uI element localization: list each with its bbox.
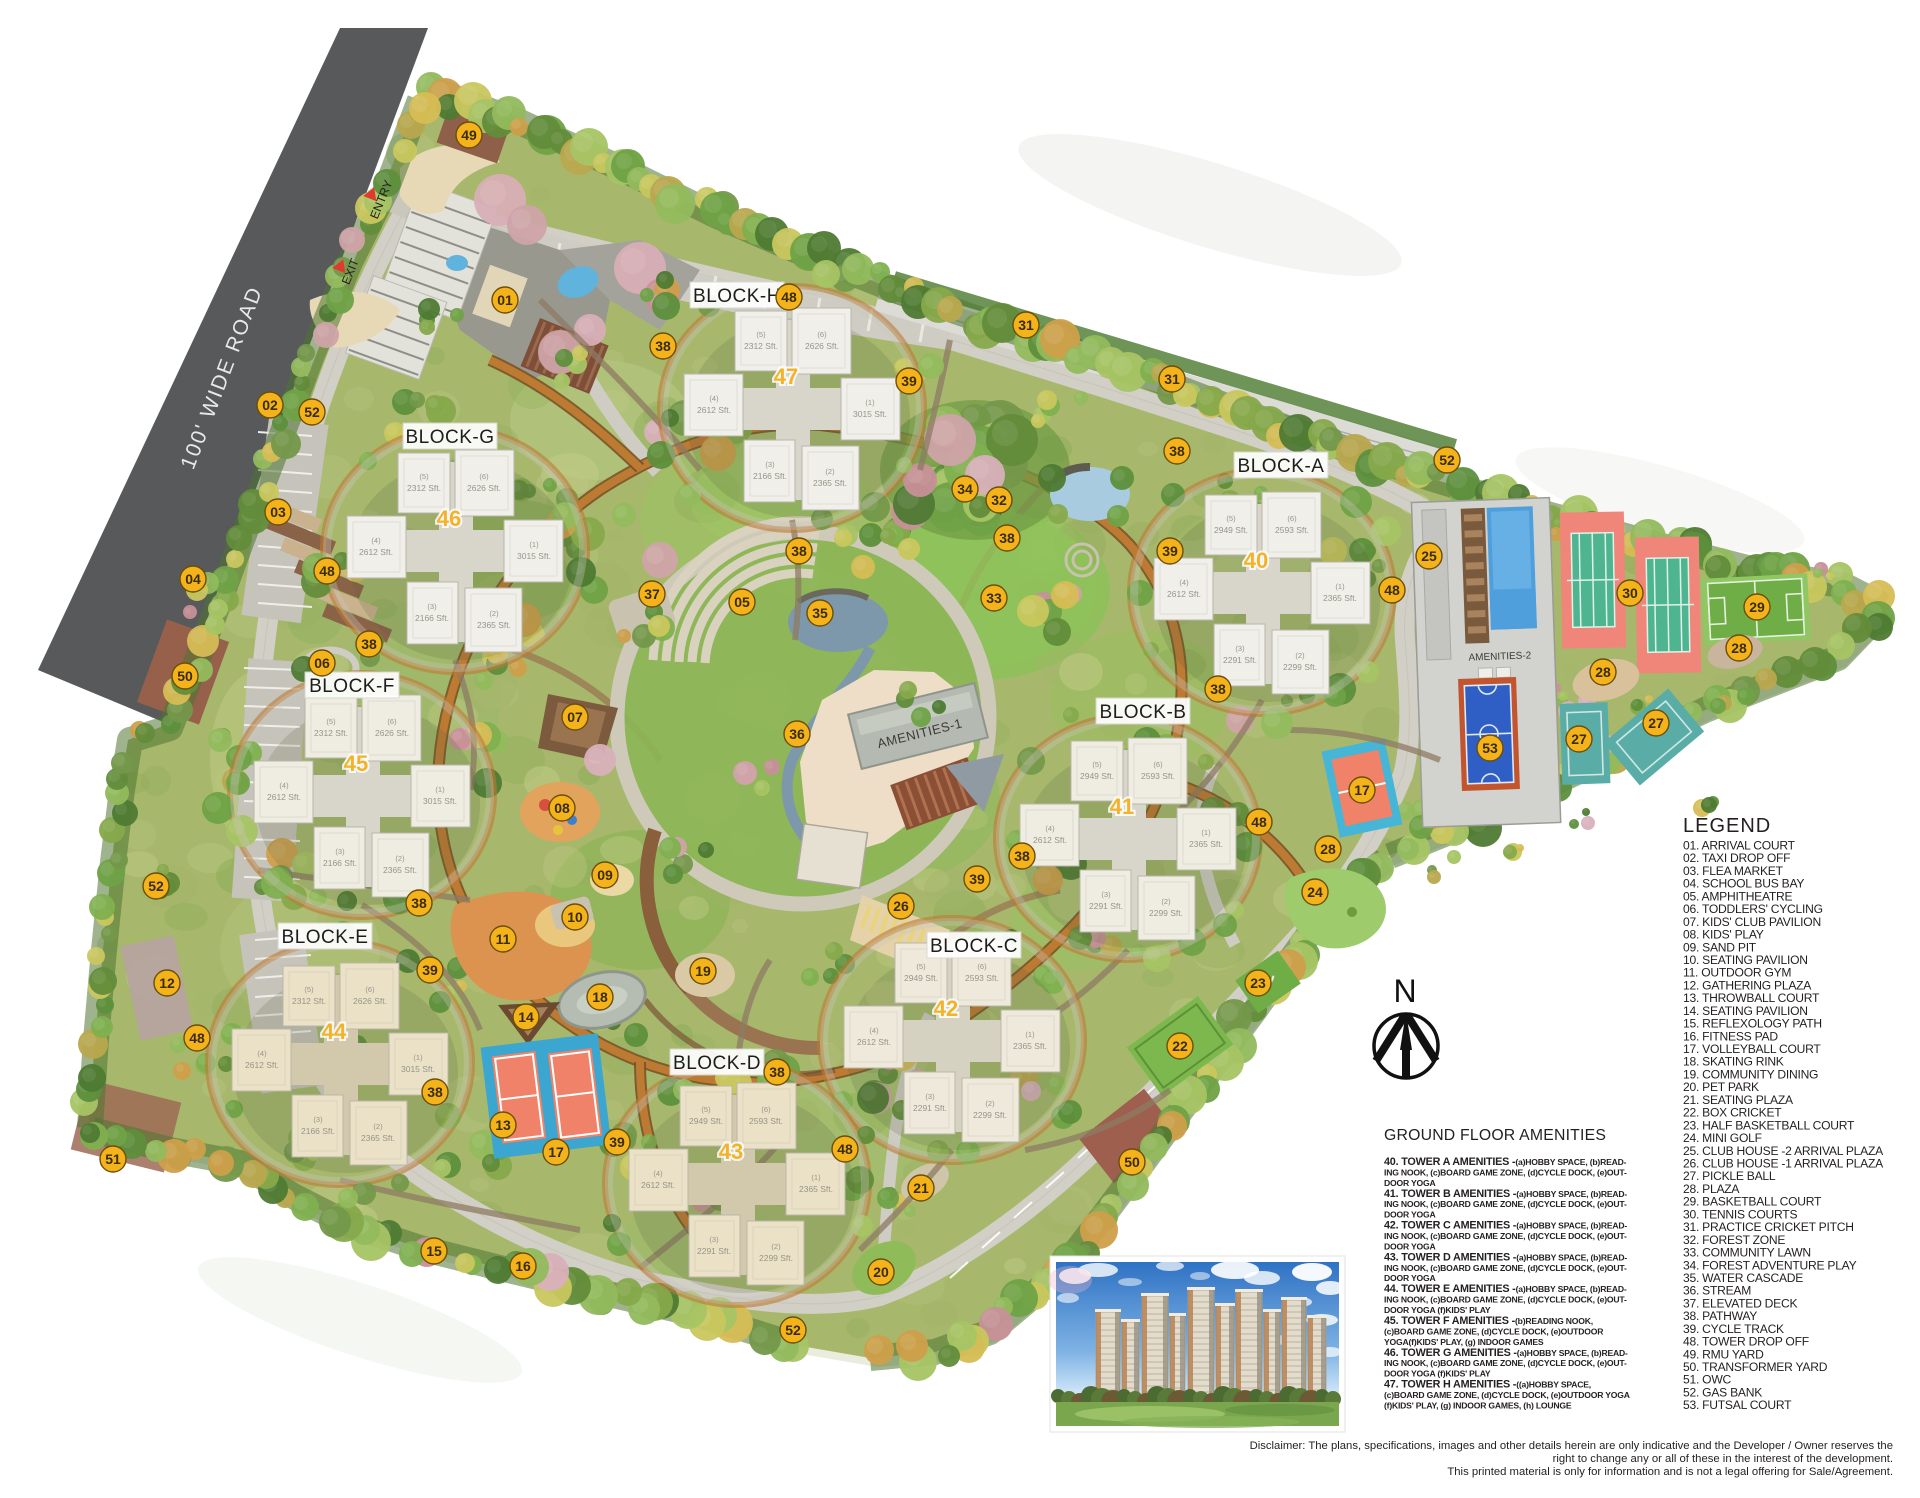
- svg-text:ING NOOK, (c)BOARD GAME ZONE,: ING NOOK, (c)BOARD GAME ZONE, (d)CYCLE D…: [1384, 1295, 1627, 1305]
- svg-text:38: 38: [791, 543, 807, 559]
- svg-text:ING NOOK, (c)BOARD GAME ZONE,: ING NOOK, (c)BOARD GAME ZONE, (d)CYCLE D…: [1384, 1231, 1627, 1241]
- svg-text:47. TOWER H AMENITIES -((a)HOB: 47. TOWER H AMENITIES -((a)HOBBY SPACE,: [1384, 1379, 1591, 1391]
- svg-text:19: 19: [695, 963, 711, 979]
- svg-text:26: 26: [893, 898, 909, 914]
- svg-text:38: 38: [427, 1084, 443, 1100]
- svg-text:42: 42: [934, 996, 958, 1021]
- svg-text:(5): (5): [326, 717, 336, 726]
- svg-text:(3): (3): [765, 460, 775, 469]
- svg-text:2312 Sft.: 2312 Sft.: [744, 341, 778, 351]
- svg-text:(4): (4): [257, 1049, 267, 1058]
- svg-text:46. TOWER G AMENITIES -(a)HOBB: 46. TOWER G AMENITIES -(a)HOBBY SPACE, (…: [1384, 1347, 1628, 1359]
- svg-text:ING NOOK, (c)BOARD GAME ZONE,: ING NOOK, (c)BOARD GAME ZONE, (d)CYCLE D…: [1384, 1358, 1627, 1368]
- svg-text:38: 38: [1014, 848, 1030, 864]
- svg-text:03: 03: [270, 504, 286, 520]
- svg-text:50: 50: [177, 668, 193, 684]
- svg-text:(6): (6): [387, 717, 397, 726]
- svg-text:3015 Sft.: 3015 Sft.: [401, 1064, 435, 1074]
- svg-text:10: 10: [567, 909, 583, 925]
- svg-text:38: 38: [769, 1064, 785, 1080]
- svg-text:01: 01: [497, 292, 513, 308]
- svg-text:(1): (1): [865, 398, 875, 407]
- svg-text:AMENITIES-2: AMENITIES-2: [1468, 650, 1532, 663]
- svg-text:(6): (6): [977, 962, 987, 971]
- svg-text:35: 35: [812, 605, 828, 621]
- svg-text:(3): (3): [1235, 644, 1245, 653]
- svg-text:(3): (3): [925, 1092, 935, 1101]
- svg-text:2291 Sft.: 2291 Sft.: [1223, 655, 1257, 665]
- svg-text:17: 17: [548, 1144, 564, 1160]
- svg-text:2166 Sft.: 2166 Sft.: [415, 613, 449, 623]
- svg-text:38: 38: [999, 530, 1015, 546]
- svg-text:LEGEND: LEGEND: [1683, 815, 1771, 837]
- svg-text:BLOCK-D: BLOCK-D: [673, 1053, 761, 1074]
- svg-text:2299 Sft.: 2299 Sft.: [973, 1110, 1007, 1120]
- svg-text:16: 16: [515, 1258, 531, 1274]
- svg-text:2166 Sft.: 2166 Sft.: [301, 1126, 335, 1136]
- svg-text:(2): (2): [825, 467, 835, 476]
- svg-text:2612 Sft.: 2612 Sft.: [1033, 835, 1067, 845]
- svg-text:39: 39: [1162, 543, 1178, 559]
- svg-text:06: 06: [314, 655, 330, 671]
- svg-text:2312 Sft.: 2312 Sft.: [314, 728, 348, 738]
- svg-text:(2): (2): [395, 854, 405, 863]
- svg-text:52: 52: [785, 1322, 801, 1338]
- svg-text:(2): (2): [771, 1242, 781, 1251]
- svg-text:48: 48: [1251, 814, 1267, 830]
- svg-text:2626 Sft.: 2626 Sft.: [353, 996, 387, 1006]
- svg-text:2312 Sft.: 2312 Sft.: [292, 996, 326, 1006]
- svg-text:2291 Sft.: 2291 Sft.: [913, 1103, 947, 1113]
- svg-text:34: 34: [957, 481, 973, 497]
- svg-text:2365 Sft.: 2365 Sft.: [477, 620, 511, 630]
- svg-text:(1): (1): [1025, 1030, 1035, 1039]
- svg-text:2291 Sft.: 2291 Sft.: [697, 1246, 731, 1256]
- svg-text:41: 41: [1110, 794, 1134, 819]
- svg-text:04: 04: [185, 571, 201, 587]
- svg-text:29: 29: [1749, 599, 1765, 615]
- svg-text:(f)KIDS' PLAY, (g) INDOOR GAME: (f)KIDS' PLAY, (g) INDOOR GAMES, (h) LOU…: [1384, 1400, 1572, 1410]
- svg-text:2365 Sft.: 2365 Sft.: [1013, 1041, 1047, 1051]
- svg-text:14: 14: [518, 1009, 534, 1025]
- svg-text:48: 48: [1384, 582, 1400, 598]
- svg-text:(3): (3): [1101, 890, 1111, 899]
- svg-text:2612 Sft.: 2612 Sft.: [1167, 589, 1201, 599]
- svg-text:(3): (3): [313, 1115, 323, 1124]
- svg-text:2949 Sft.: 2949 Sft.: [1214, 525, 1248, 535]
- svg-text:13: 13: [495, 1117, 511, 1133]
- svg-text:09: 09: [597, 867, 613, 883]
- svg-text:3015 Sft.: 3015 Sft.: [853, 409, 887, 419]
- svg-text:38: 38: [411, 895, 427, 911]
- svg-text:15: 15: [426, 1243, 442, 1259]
- svg-text:21: 21: [913, 1180, 929, 1196]
- svg-text:(4): (4): [653, 1169, 663, 1178]
- svg-text:42. TOWER C AMENITIES -(a)HOBB: 42. TOWER C AMENITIES -(a)HOBBY SPACE, (…: [1384, 1220, 1627, 1232]
- svg-text:ING NOOK, (c)BOARD GAME ZONE,: ING NOOK, (c)BOARD GAME ZONE, (d)CYCLE D…: [1384, 1263, 1627, 1273]
- svg-text:(1): (1): [1201, 828, 1211, 837]
- svg-text:2949 Sft.: 2949 Sft.: [689, 1116, 723, 1126]
- svg-text:2166 Sft.: 2166 Sft.: [323, 858, 357, 868]
- svg-text:2612 Sft.: 2612 Sft.: [641, 1180, 675, 1190]
- svg-text:2365 Sft.: 2365 Sft.: [361, 1133, 395, 1143]
- svg-text:37: 37: [644, 586, 660, 602]
- svg-text:DOOR YOGA (f)KIDS' PLAY: DOOR YOGA (f)KIDS' PLAY: [1384, 1369, 1491, 1379]
- svg-text:2593 Sft.: 2593 Sft.: [965, 973, 999, 983]
- svg-text:2612 Sft.: 2612 Sft.: [267, 792, 301, 802]
- svg-text:43: 43: [719, 1139, 743, 1164]
- svg-text:(2): (2): [373, 1122, 383, 1131]
- svg-text:38: 38: [1169, 443, 1185, 459]
- svg-text:BLOCK-G: BLOCK-G: [405, 427, 494, 448]
- svg-text:(5): (5): [304, 985, 314, 994]
- svg-text:(4): (4): [709, 394, 719, 403]
- svg-text:2612 Sft.: 2612 Sft.: [245, 1060, 279, 1070]
- svg-text:(c)BOARD GAME ZONE, (d)CYCLE D: (c)BOARD GAME ZONE, (d)CYCLE DOCK, (e)OU…: [1384, 1326, 1604, 1336]
- svg-text:(1): (1): [413, 1053, 423, 1062]
- svg-text:2626 Sft.: 2626 Sft.: [467, 483, 501, 493]
- svg-text:39: 39: [422, 962, 438, 978]
- svg-text:08: 08: [554, 800, 570, 816]
- svg-text:02: 02: [262, 397, 278, 413]
- svg-text:GROUND FLOOR AMENITIES: GROUND FLOOR AMENITIES: [1384, 1127, 1606, 1144]
- svg-text:39: 39: [609, 1134, 625, 1150]
- svg-text:BLOCK-F: BLOCK-F: [309, 676, 395, 697]
- svg-text:22: 22: [1172, 1038, 1188, 1054]
- svg-text:45: 45: [344, 751, 368, 776]
- svg-text:51: 51: [105, 1151, 121, 1167]
- svg-text:(5): (5): [1092, 760, 1102, 769]
- svg-text:50: 50: [1124, 1154, 1140, 1170]
- svg-text:2612 Sft.: 2612 Sft.: [697, 405, 731, 415]
- svg-text:28: 28: [1320, 841, 1336, 857]
- svg-text:BLOCK-C: BLOCK-C: [930, 936, 1018, 957]
- svg-text:30: 30: [1622, 585, 1638, 601]
- svg-text:(6): (6): [761, 1105, 771, 1114]
- svg-text:Disclaimer: The plans, specifi: Disclaimer: The plans, specifications, i…: [1250, 1440, 1893, 1452]
- svg-text:2365 Sft.: 2365 Sft.: [1323, 593, 1357, 603]
- svg-text:48: 48: [781, 289, 797, 305]
- svg-text:44: 44: [322, 1019, 347, 1044]
- svg-text:36: 36: [789, 726, 805, 742]
- svg-text:(5): (5): [756, 330, 766, 339]
- svg-text:(2): (2): [489, 609, 499, 618]
- svg-text:52: 52: [148, 878, 164, 894]
- svg-text:N: N: [1393, 973, 1416, 1009]
- svg-text:32: 32: [991, 492, 1007, 508]
- svg-text:2626 Sft.: 2626 Sft.: [375, 728, 409, 738]
- svg-text:(5): (5): [419, 472, 429, 481]
- svg-text:48: 48: [189, 1030, 205, 1046]
- svg-text:(6): (6): [365, 985, 375, 994]
- svg-text:07: 07: [567, 709, 583, 725]
- svg-text:48: 48: [319, 563, 335, 579]
- svg-text:2949 Sft.: 2949 Sft.: [1080, 771, 1114, 781]
- svg-text:(2): (2): [1161, 897, 1171, 906]
- svg-text:BLOCK-H: BLOCK-H: [693, 286, 781, 307]
- svg-text:3015 Sft.: 3015 Sft.: [423, 796, 457, 806]
- svg-text:This printed material is only: This printed material is only for inform…: [1447, 1466, 1893, 1478]
- svg-text:(6): (6): [1287, 514, 1297, 523]
- svg-text:2612 Sft.: 2612 Sft.: [857, 1037, 891, 1047]
- svg-text:right to change any or all of: right to change any or all of these in t…: [1553, 1453, 1893, 1465]
- svg-text:05: 05: [734, 594, 750, 610]
- svg-text:38: 38: [655, 338, 671, 354]
- svg-text:(2): (2): [1295, 651, 1305, 660]
- svg-text:(4): (4): [1045, 824, 1055, 833]
- svg-text:2593 Sft.: 2593 Sft.: [749, 1116, 783, 1126]
- svg-text:(4): (4): [869, 1026, 879, 1035]
- svg-text:(6): (6): [1153, 760, 1163, 769]
- svg-text:(1): (1): [811, 1173, 821, 1182]
- svg-text:(5): (5): [701, 1105, 711, 1114]
- svg-text:53: 53: [1482, 740, 1498, 756]
- svg-text:23: 23: [1250, 975, 1266, 991]
- svg-text:27: 27: [1571, 731, 1587, 747]
- svg-text:11: 11: [496, 931, 511, 947]
- svg-text:2626 Sft.: 2626 Sft.: [805, 341, 839, 351]
- svg-text:2365 Sft.: 2365 Sft.: [813, 478, 847, 488]
- svg-text:ING NOOK, (c)BOARD GAME ZONE,: ING NOOK, (c)BOARD GAME ZONE, (d)CYCLE D…: [1384, 1167, 1627, 1177]
- svg-text:48: 48: [837, 1141, 853, 1157]
- svg-text:27: 27: [1648, 715, 1664, 731]
- svg-text:44. TOWER E AMENITIES -(a)HOB: 44. TOWER E AMENITIES -(a)HOBBY SPACE, (…: [1384, 1283, 1627, 1295]
- svg-text:2949 Sft.: 2949 Sft.: [904, 973, 938, 983]
- svg-text:49: 49: [461, 127, 477, 143]
- svg-text:2365 Sft.: 2365 Sft.: [383, 865, 417, 875]
- svg-text:(2): (2): [985, 1099, 995, 1108]
- svg-text:40. TOWER A AMENITIES -(a)HOB: 40. TOWER A AMENITIES -(a)HOBBY SPACE, (…: [1384, 1156, 1627, 1168]
- svg-text:(5): (5): [916, 962, 926, 971]
- svg-text:43. TOWER D AMENITIES -(a)HOBB: 43. TOWER D AMENITIES -(a)HOBBY SPACE, (…: [1384, 1251, 1627, 1263]
- svg-text:31: 31: [1164, 371, 1180, 387]
- svg-text:38: 38: [361, 636, 377, 652]
- svg-text:(1): (1): [1335, 582, 1345, 591]
- svg-text:2166 Sft.: 2166 Sft.: [753, 471, 787, 481]
- svg-text:(4): (4): [371, 536, 381, 545]
- svg-text:53. FUTSAL COURT: 53. FUTSAL COURT: [1683, 1398, 1792, 1412]
- svg-text:DOOR YOGA: DOOR YOGA: [1384, 1241, 1436, 1251]
- svg-text:39: 39: [901, 373, 917, 389]
- svg-text:(6): (6): [817, 330, 827, 339]
- svg-text:46: 46: [437, 506, 461, 531]
- svg-text:BLOCK-B: BLOCK-B: [1100, 702, 1187, 723]
- svg-text:39: 39: [969, 871, 985, 887]
- svg-text:(5): (5): [1226, 514, 1236, 523]
- svg-text:ING NOOK, (c)BOARD GAME ZONE,: ING NOOK, (c)BOARD GAME ZONE, (d)CYCLE D…: [1384, 1199, 1627, 1209]
- svg-text:31: 31: [1018, 317, 1034, 333]
- svg-text:(4): (4): [1179, 578, 1189, 587]
- svg-text:47: 47: [774, 364, 798, 389]
- svg-text:2299 Sft.: 2299 Sft.: [759, 1253, 793, 1263]
- svg-text:(4): (4): [279, 781, 289, 790]
- svg-text:41. TOWER B AMENITIES -(a)HOBB: 41. TOWER B AMENITIES -(a)HOBBY SPACE, (…: [1384, 1188, 1627, 1200]
- svg-text:24: 24: [1307, 884, 1323, 900]
- svg-text:(3): (3): [335, 847, 345, 856]
- svg-text:18: 18: [592, 989, 608, 1005]
- svg-text:2312 Sft.: 2312 Sft.: [407, 483, 441, 493]
- svg-text:12: 12: [159, 975, 175, 991]
- svg-text:2291 Sft.: 2291 Sft.: [1089, 901, 1123, 911]
- svg-text:52: 52: [304, 404, 320, 420]
- svg-text:(1): (1): [435, 785, 445, 794]
- svg-text:2612 Sft.: 2612 Sft.: [359, 547, 393, 557]
- svg-text:2365 Sft.: 2365 Sft.: [799, 1184, 833, 1194]
- svg-text:52: 52: [1439, 452, 1455, 468]
- svg-text:25: 25: [1421, 548, 1437, 564]
- svg-text:2299 Sft.: 2299 Sft.: [1283, 662, 1317, 672]
- svg-text:(6): (6): [479, 472, 489, 481]
- svg-text:(3): (3): [427, 602, 437, 611]
- svg-text:(3): (3): [709, 1235, 719, 1244]
- svg-text:DOOR YOGA: DOOR YOGA: [1384, 1210, 1436, 1220]
- svg-text:2593 Sft.: 2593 Sft.: [1141, 771, 1175, 781]
- svg-text:2365 Sft.: 2365 Sft.: [1189, 839, 1223, 849]
- svg-text:2593 Sft.: 2593 Sft.: [1275, 525, 1309, 535]
- svg-text:DOOR YOGA: DOOR YOGA: [1384, 1178, 1436, 1188]
- svg-text:YOGA(f)KIDS' PLAY, (g) INDOOR: YOGA(f)KIDS' PLAY, (g) INDOOR GAMES: [1384, 1337, 1544, 1347]
- svg-text:(1): (1): [529, 540, 539, 549]
- svg-text:28: 28: [1731, 640, 1747, 656]
- svg-text:40: 40: [1244, 548, 1268, 573]
- svg-text:BLOCK-E: BLOCK-E: [282, 927, 369, 948]
- svg-text:28: 28: [1595, 664, 1611, 680]
- svg-text:2299 Sft.: 2299 Sft.: [1149, 908, 1183, 918]
- svg-text:(c)BOARD GAME ZONE, (d)CYCLE D: (c)BOARD GAME ZONE, (d)CYCLE DOCK, (e)OU…: [1384, 1390, 1630, 1400]
- svg-text:33: 33: [986, 590, 1002, 606]
- svg-text:20: 20: [873, 1264, 889, 1280]
- svg-text:3015 Sft.: 3015 Sft.: [517, 551, 551, 561]
- svg-text:45. TOWER F AMENITIES -(b)REA: 45. TOWER F AMENITIES -(b)READING NOOK,: [1384, 1315, 1593, 1327]
- svg-text:DOOR YOGA: DOOR YOGA: [1384, 1273, 1436, 1283]
- svg-text:17: 17: [1354, 782, 1370, 798]
- svg-text:BLOCK-A: BLOCK-A: [1238, 456, 1325, 477]
- svg-text:38: 38: [1210, 681, 1226, 697]
- svg-text:DOOR YOGA (f)KIDS' PLAY: DOOR YOGA (f)KIDS' PLAY: [1384, 1305, 1491, 1315]
